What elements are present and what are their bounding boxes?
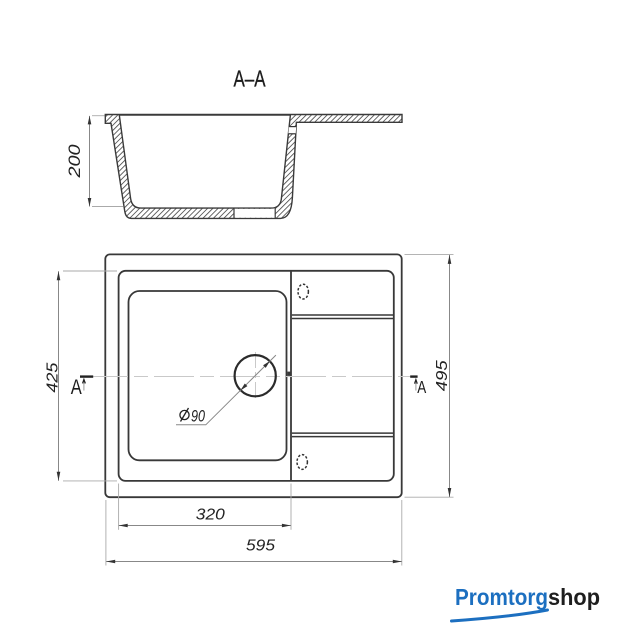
svg-text:595: 595 xyxy=(246,538,275,555)
svg-text:shop: shop xyxy=(548,584,600,610)
svg-text:A: A xyxy=(71,376,82,399)
svg-text:90: 90 xyxy=(191,406,205,425)
svg-text:495: 495 xyxy=(434,360,451,391)
svg-text:320: 320 xyxy=(196,507,225,524)
svg-text:425: 425 xyxy=(45,362,62,392)
svg-text:Promtorg: Promtorg xyxy=(455,584,548,610)
svg-text:A: A xyxy=(417,377,426,397)
svg-text:A–A: A–A xyxy=(234,66,266,92)
svg-text:200: 200 xyxy=(66,144,84,179)
